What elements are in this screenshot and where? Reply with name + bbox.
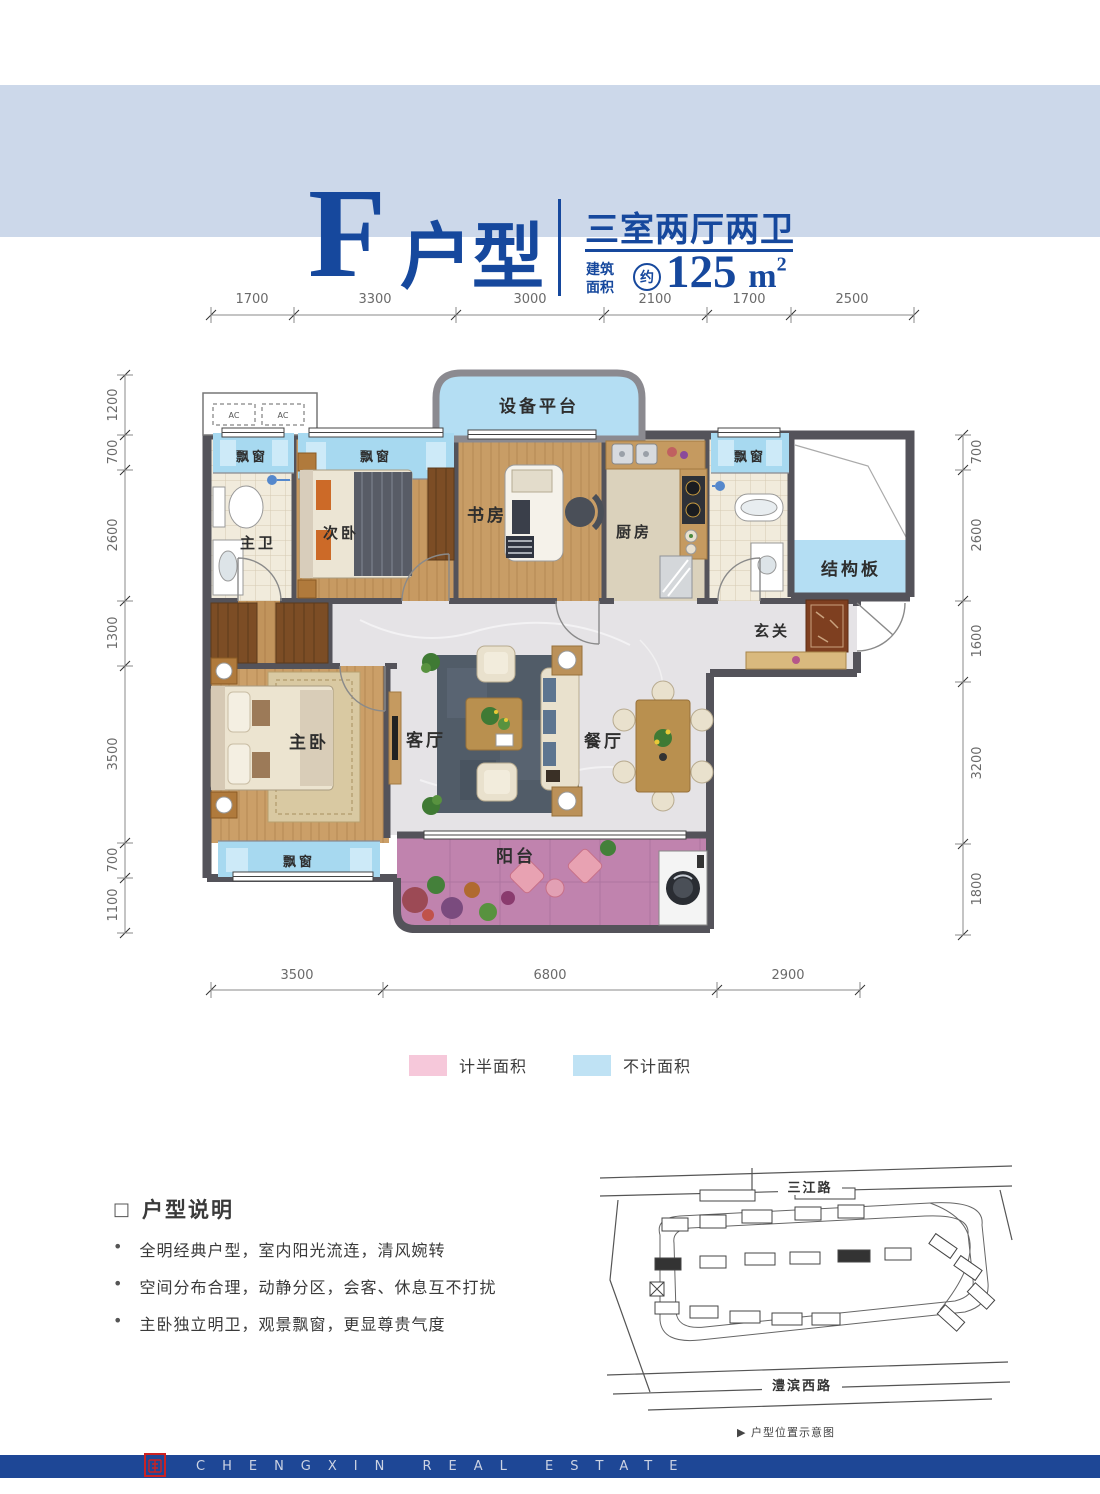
description-bullet-2: • 空间分布合理，动静分区，会客、休息互不打扰 [113,1274,573,1298]
bullet-icon: • [113,1311,123,1335]
legend-half-area: 计半面积 [409,1053,527,1077]
map-buildings [650,1188,995,1331]
bullet-icon: • [113,1237,123,1261]
label-dining-room: 餐厅 [584,731,624,752]
dim-left-1: 1200 [106,388,121,421]
label-bay-window-4: 飘窗 [283,854,315,870]
dim-top-1: 1700 [235,292,268,307]
label-second-bedroom: 次卧 [323,524,359,542]
legend-excluded-area: 不计面积 [573,1053,691,1077]
dim-top-6: 2500 [835,292,868,307]
dim-left-3: 2600 [106,518,121,551]
floorplan-drawing: AC AC [0,270,1100,1010]
dim-top-4: 2100 [638,292,671,307]
dim-top-5: 1700 [732,292,765,307]
dim-left-5: 3500 [106,737,121,770]
label-master-bedroom: 主卧 [289,732,329,753]
label-living-room: 客厅 [405,730,446,751]
dim-bottom-3: 2900 [771,968,804,983]
unit-layout: 三室两厅两卫 [585,202,795,251]
square-marker-icon: □ [113,1199,132,1220]
area-legend: 计半面积 不计面积 [0,1053,1100,1077]
map-caption-text: 户型位置示意图 [751,1426,835,1439]
road-top-label: 三江路 [787,1180,832,1196]
label-bay-window-2: 飘窗 [360,449,392,465]
dim-left-7: 1100 [106,888,121,921]
dim-right-2: 2600 [970,518,985,551]
unit-description: □ 户型说明 • 全明经典户型，室内阳光流连，清风婉转 • 空间分布合理，动静分… [113,1194,573,1335]
label-master-bath: 主卫 [240,534,276,552]
description-title: 户型说明 [142,1194,234,1224]
dim-right-5: 1800 [970,872,985,905]
label-structural-slab: 结构板 [821,559,881,580]
half-area-swatch [409,1055,447,1076]
half-area-label: 计半面积 [459,1053,527,1077]
excluded-area-swatch [573,1055,611,1076]
excluded-area-label: 不计面积 [623,1053,691,1077]
bullet-icon: • [113,1274,123,1298]
description-bullet-3: • 主卧独立明卫，观景飘窗，更显尊贵气度 [113,1311,573,1335]
dim-left-2: 700 [106,440,121,465]
site-location-map: 三江路 澧滨西路 [595,1150,1015,1430]
dim-left-4: 1300 [106,616,121,649]
label-bay-window-3: 飘窗 [734,449,766,465]
bullet-text: 空间分布合理，动静分区，会客、休息互不打扰 [139,1274,496,1298]
description-title-row: □ 户型说明 [113,1194,573,1224]
label-balcony: 阳台 [496,846,536,867]
label-equipment-platform: 设备平台 [499,396,579,417]
brand-text: CHENGXIN REAL ESTATE [196,1459,694,1474]
dim-bottom-1: 3500 [280,968,313,983]
ac-label-1: AC [229,411,240,420]
dim-left-6: 700 [106,848,121,873]
label-bay-window-1: 飘窗 [236,449,268,465]
bullet-text: 主卧独立明卫，观景飘窗，更显尊贵气度 [139,1311,445,1335]
header-band: F 户型 三室两厅两卫 建筑 面积 约 125 m2 [0,85,1100,237]
label-kitchen: 厨房 [616,523,652,541]
road-bottom-label: 澧滨西路 [772,1378,832,1394]
map-caption-row: ▶ 户型位置示意图 [737,1424,835,1440]
dim-right-3: 1600 [970,624,985,657]
company-seal-icon [143,1452,167,1478]
description-bullet-1: • 全明经典户型，室内阳光流连，清风婉转 [113,1237,573,1261]
dim-right-4: 3200 [970,746,985,779]
ac-label-2: AC [278,411,289,420]
caption-arrow-icon: ▶ [737,1426,746,1439]
label-study: 书房 [467,505,507,526]
bullet-text: 全明经典户型，室内阳光流连，清风婉转 [139,1237,445,1261]
dim-top-3: 3000 [513,292,546,307]
dim-bottom-2: 6800 [533,968,566,983]
label-foyer: 玄关 [754,622,790,640]
dim-top-2: 3300 [358,292,391,307]
dim-right-1: 700 [970,440,985,465]
floorplan-poster: F 户型 三室两厅两卫 建筑 面积 约 125 m2 [0,0,1100,1494]
